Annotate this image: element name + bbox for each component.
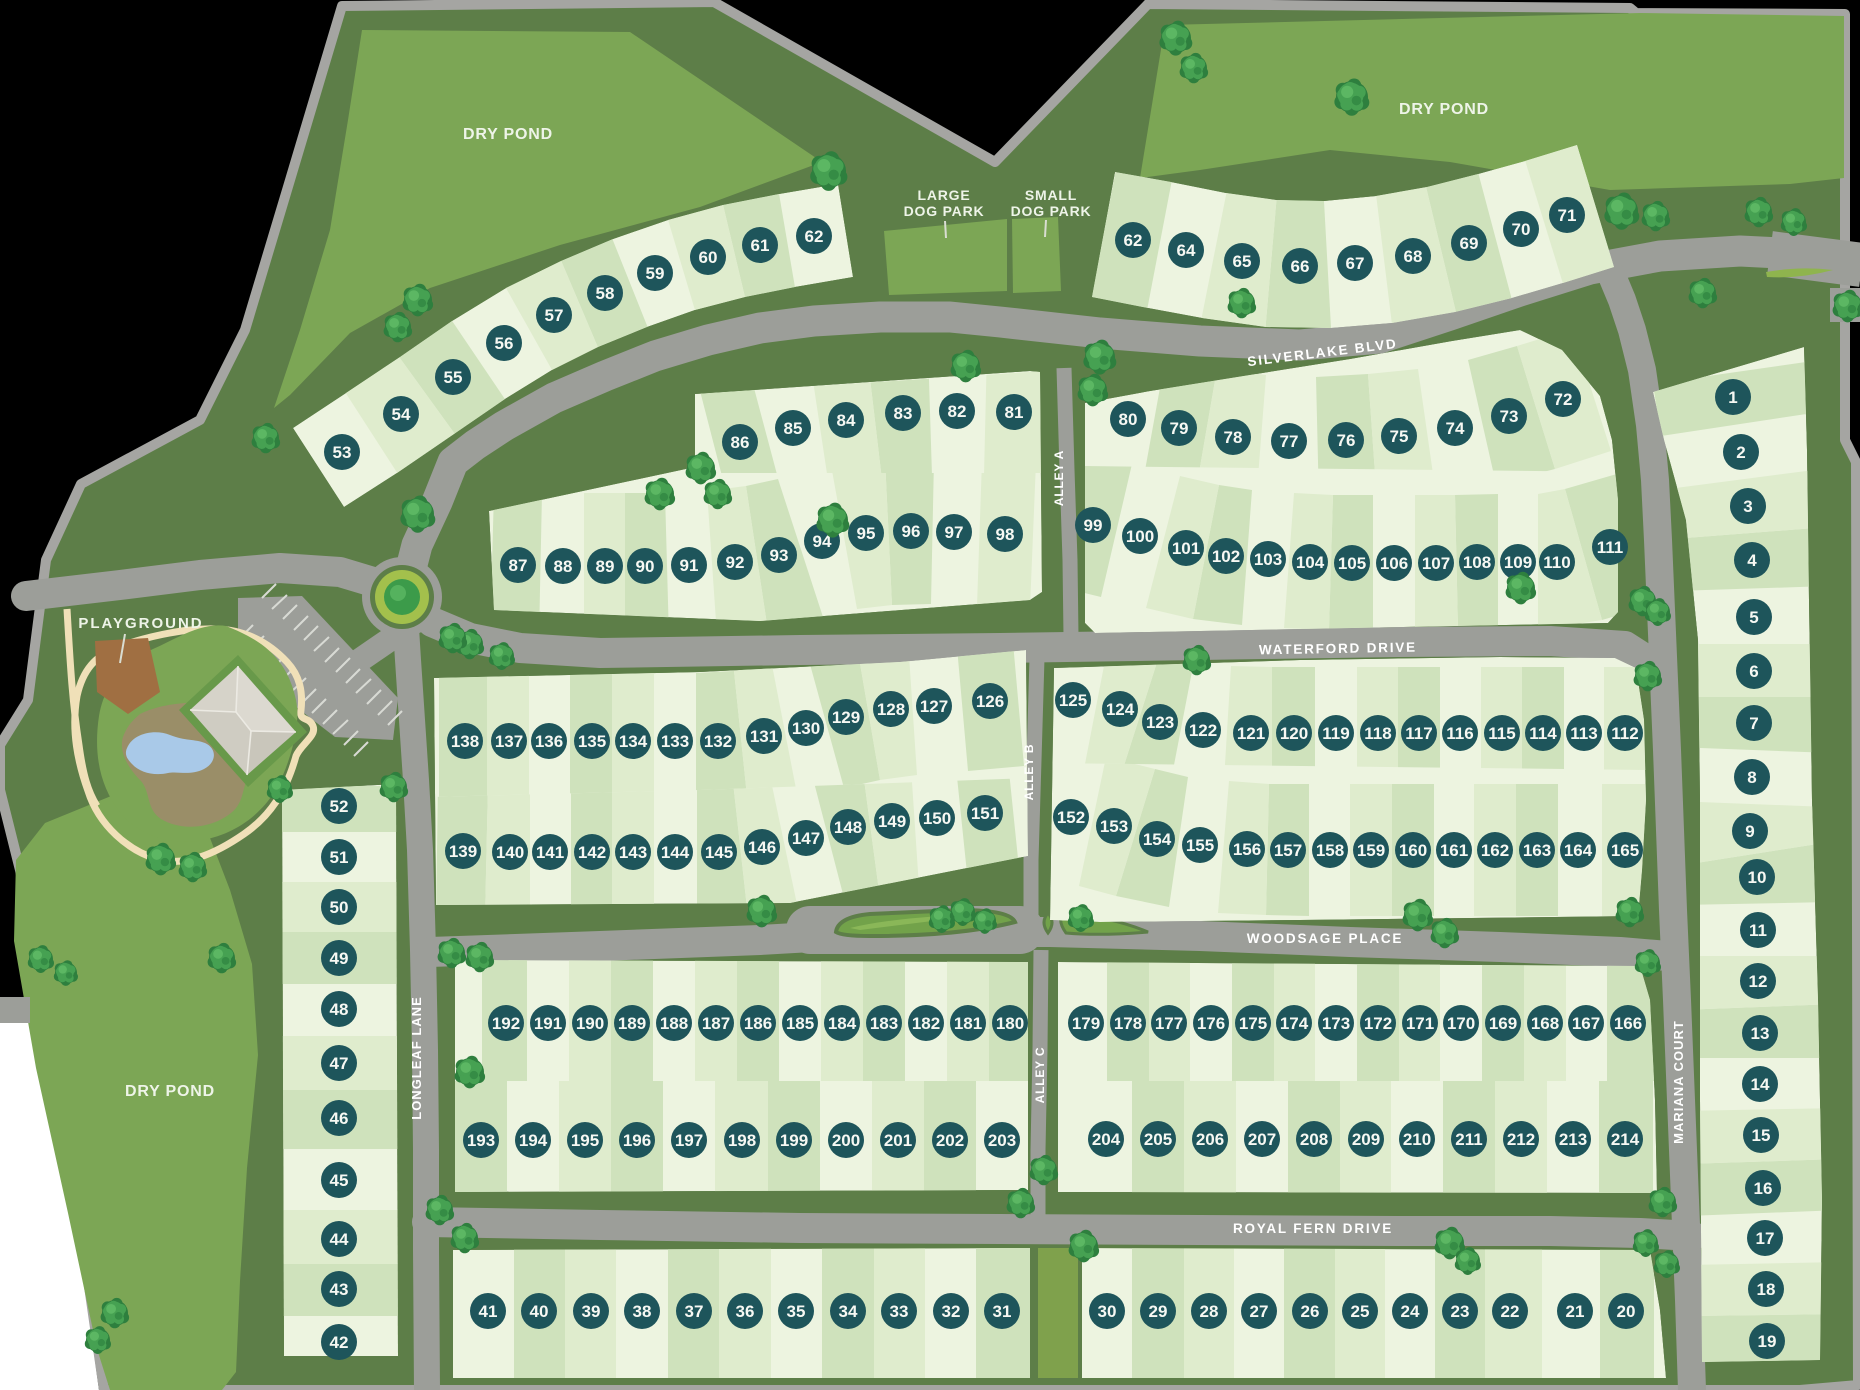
- svg-text:36: 36: [736, 1302, 755, 1321]
- svg-text:72: 72: [1554, 390, 1573, 409]
- svg-text:4: 4: [1747, 551, 1757, 570]
- svg-text:30: 30: [1098, 1302, 1117, 1321]
- svg-text:161: 161: [1440, 841, 1468, 860]
- svg-text:201: 201: [884, 1131, 912, 1150]
- svg-text:96: 96: [902, 522, 921, 541]
- svg-text:123: 123: [1146, 713, 1174, 732]
- svg-text:32: 32: [942, 1302, 961, 1321]
- svg-text:90: 90: [636, 557, 655, 576]
- svg-text:169: 169: [1489, 1014, 1517, 1033]
- svg-text:WOODSAGE PLACE: WOODSAGE PLACE: [1247, 931, 1403, 946]
- svg-text:86: 86: [731, 433, 750, 452]
- svg-text:100: 100: [1126, 527, 1154, 546]
- svg-text:165: 165: [1611, 841, 1639, 860]
- svg-text:79: 79: [1170, 419, 1189, 438]
- svg-text:85: 85: [784, 419, 803, 438]
- svg-text:PLAYGROUND: PLAYGROUND: [78, 615, 203, 632]
- svg-text:167: 167: [1572, 1014, 1600, 1033]
- svg-text:129: 129: [832, 708, 860, 727]
- svg-text:35: 35: [787, 1302, 806, 1321]
- svg-text:92: 92: [726, 553, 745, 572]
- svg-text:193: 193: [467, 1131, 495, 1150]
- svg-text:56: 56: [495, 334, 514, 353]
- svg-text:163: 163: [1523, 841, 1551, 860]
- svg-text:52: 52: [330, 797, 349, 816]
- svg-text:38: 38: [633, 1302, 652, 1321]
- svg-text:208: 208: [1300, 1130, 1328, 1149]
- svg-text:139: 139: [449, 842, 477, 861]
- svg-text:15: 15: [1752, 1126, 1771, 1145]
- svg-text:187: 187: [702, 1014, 730, 1033]
- svg-text:213: 213: [1559, 1130, 1587, 1149]
- svg-text:64: 64: [1177, 241, 1196, 260]
- svg-text:8: 8: [1747, 768, 1756, 787]
- svg-text:54: 54: [392, 405, 411, 424]
- svg-text:168: 168: [1531, 1014, 1559, 1033]
- svg-text:97: 97: [945, 523, 964, 542]
- svg-text:98: 98: [996, 525, 1015, 544]
- svg-text:16: 16: [1754, 1179, 1773, 1198]
- svg-text:19: 19: [1758, 1332, 1777, 1351]
- svg-text:42: 42: [330, 1333, 349, 1352]
- svg-text:211: 211: [1455, 1130, 1482, 1149]
- svg-text:185: 185: [786, 1014, 814, 1033]
- svg-text:188: 188: [660, 1014, 688, 1033]
- svg-text:18: 18: [1757, 1280, 1776, 1299]
- svg-text:74: 74: [1446, 419, 1465, 438]
- svg-text:46: 46: [330, 1109, 349, 1128]
- svg-text:39: 39: [582, 1302, 601, 1321]
- svg-text:LONGLEAF LANE: LONGLEAF LANE: [409, 996, 424, 1120]
- svg-text:34: 34: [839, 1302, 858, 1321]
- svg-text:6: 6: [1749, 662, 1758, 681]
- svg-text:12: 12: [1749, 972, 1768, 991]
- svg-text:DOG PARK: DOG PARK: [904, 203, 985, 219]
- svg-text:206: 206: [1196, 1130, 1224, 1149]
- svg-text:202: 202: [936, 1131, 964, 1150]
- svg-text:24: 24: [1401, 1302, 1420, 1321]
- svg-text:205: 205: [1144, 1130, 1172, 1149]
- svg-text:31: 31: [993, 1302, 1012, 1321]
- svg-text:162: 162: [1481, 841, 1509, 860]
- svg-text:53: 53: [333, 443, 352, 462]
- svg-text:164: 164: [1564, 841, 1593, 860]
- svg-text:143: 143: [619, 843, 647, 862]
- svg-text:149: 149: [878, 812, 906, 831]
- svg-text:136: 136: [535, 732, 563, 751]
- svg-text:80: 80: [1119, 410, 1138, 429]
- svg-text:WATERFORD DRIVE: WATERFORD DRIVE: [1259, 640, 1417, 658]
- svg-text:192: 192: [492, 1014, 520, 1033]
- svg-text:142: 142: [578, 843, 606, 862]
- svg-text:197: 197: [675, 1131, 703, 1150]
- svg-text:214: 214: [1611, 1130, 1640, 1149]
- svg-text:146: 146: [748, 838, 776, 857]
- svg-text:156: 156: [1233, 840, 1261, 859]
- svg-text:128: 128: [877, 700, 905, 719]
- svg-text:ALLEY C: ALLEY C: [1033, 1047, 1047, 1104]
- svg-text:203: 203: [988, 1131, 1016, 1150]
- svg-text:25: 25: [1351, 1302, 1370, 1321]
- svg-text:180: 180: [996, 1014, 1024, 1033]
- svg-text:84: 84: [837, 411, 856, 430]
- svg-text:166: 166: [1614, 1014, 1642, 1033]
- svg-text:DRY POND: DRY POND: [463, 126, 553, 143]
- svg-text:26: 26: [1301, 1302, 1320, 1321]
- svg-text:10: 10: [1748, 868, 1767, 887]
- svg-text:95: 95: [857, 524, 876, 543]
- svg-text:59: 59: [646, 264, 665, 283]
- svg-text:159: 159: [1357, 841, 1385, 860]
- svg-text:47: 47: [330, 1054, 349, 1073]
- svg-text:179: 179: [1072, 1014, 1100, 1033]
- svg-text:7: 7: [1749, 714, 1758, 733]
- svg-text:3: 3: [1743, 497, 1752, 516]
- svg-text:11: 11: [1749, 921, 1767, 940]
- svg-text:154: 154: [1143, 830, 1172, 849]
- svg-text:145: 145: [705, 843, 733, 862]
- svg-text:58: 58: [596, 284, 615, 303]
- svg-text:135: 135: [578, 732, 606, 751]
- svg-text:119: 119: [1322, 724, 1349, 743]
- svg-text:61: 61: [751, 236, 770, 255]
- svg-text:152: 152: [1057, 808, 1085, 827]
- svg-text:178: 178: [1114, 1014, 1142, 1033]
- svg-text:207: 207: [1248, 1130, 1276, 1149]
- svg-text:153: 153: [1100, 817, 1128, 836]
- svg-text:204: 204: [1092, 1130, 1121, 1149]
- svg-text:147: 147: [792, 829, 820, 848]
- svg-text:MARIANA COURT: MARIANA COURT: [1671, 1020, 1686, 1144]
- svg-text:122: 122: [1189, 721, 1217, 740]
- svg-text:ALLEY A: ALLEY A: [1052, 450, 1066, 506]
- svg-text:73: 73: [1500, 407, 1519, 426]
- svg-text:93: 93: [770, 546, 789, 565]
- svg-text:DOG PARK: DOG PARK: [1011, 203, 1092, 219]
- svg-text:5: 5: [1749, 608, 1758, 627]
- svg-text:9: 9: [1745, 822, 1754, 841]
- svg-text:113: 113: [1570, 724, 1597, 743]
- svg-text:198: 198: [728, 1131, 756, 1150]
- svg-text:104: 104: [1296, 553, 1325, 572]
- svg-text:65: 65: [1233, 252, 1252, 271]
- svg-text:ALLEY B: ALLEY B: [1022, 744, 1036, 801]
- svg-text:155: 155: [1186, 836, 1214, 855]
- svg-text:29: 29: [1149, 1302, 1168, 1321]
- svg-text:194: 194: [519, 1131, 548, 1150]
- svg-text:23: 23: [1451, 1302, 1470, 1321]
- svg-text:70: 70: [1512, 220, 1531, 239]
- svg-text:134: 134: [619, 732, 648, 751]
- svg-text:33: 33: [890, 1302, 909, 1321]
- svg-text:108: 108: [1463, 553, 1491, 572]
- svg-text:SMALL: SMALL: [1025, 187, 1077, 203]
- svg-text:17: 17: [1756, 1229, 1775, 1248]
- svg-text:158: 158: [1316, 841, 1344, 860]
- svg-text:118: 118: [1364, 724, 1391, 743]
- svg-text:209: 209: [1352, 1130, 1380, 1149]
- svg-text:103: 103: [1254, 550, 1282, 569]
- svg-text:107: 107: [1422, 554, 1450, 573]
- svg-text:120: 120: [1280, 724, 1308, 743]
- svg-text:130: 130: [792, 719, 820, 738]
- svg-text:14: 14: [1751, 1075, 1770, 1094]
- svg-text:144: 144: [661, 843, 690, 862]
- svg-text:57: 57: [545, 306, 564, 325]
- svg-text:150: 150: [923, 809, 951, 828]
- svg-text:41: 41: [479, 1302, 498, 1321]
- svg-text:133: 133: [661, 732, 689, 751]
- svg-text:1: 1: [1728, 388, 1737, 407]
- svg-text:184: 184: [828, 1014, 857, 1033]
- svg-text:69: 69: [1460, 234, 1479, 253]
- svg-text:62: 62: [1124, 231, 1143, 250]
- svg-text:48: 48: [330, 1000, 349, 1019]
- svg-text:182: 182: [912, 1014, 940, 1033]
- svg-text:115: 115: [1488, 724, 1515, 743]
- svg-text:210: 210: [1403, 1130, 1431, 1149]
- svg-text:170: 170: [1447, 1014, 1475, 1033]
- svg-text:40: 40: [530, 1302, 549, 1321]
- svg-text:102: 102: [1212, 547, 1240, 566]
- svg-text:151: 151: [971, 804, 999, 823]
- svg-text:177: 177: [1155, 1014, 1183, 1033]
- svg-text:117: 117: [1405, 724, 1432, 743]
- svg-text:132: 132: [704, 732, 732, 751]
- svg-text:191: 191: [534, 1014, 562, 1033]
- svg-text:137: 137: [495, 732, 523, 751]
- svg-text:51: 51: [330, 848, 349, 867]
- svg-text:101: 101: [1172, 539, 1200, 558]
- svg-text:88: 88: [554, 557, 573, 576]
- svg-text:77: 77: [1280, 432, 1299, 451]
- svg-text:109: 109: [1504, 553, 1532, 572]
- svg-text:76: 76: [1337, 431, 1356, 450]
- svg-text:43: 43: [330, 1280, 349, 1299]
- svg-text:189: 189: [618, 1014, 646, 1033]
- svg-text:160: 160: [1399, 841, 1427, 860]
- svg-text:89: 89: [596, 557, 615, 576]
- svg-text:91: 91: [680, 556, 699, 575]
- svg-text:181: 181: [954, 1014, 982, 1033]
- svg-text:176: 176: [1197, 1014, 1225, 1033]
- svg-text:27: 27: [1250, 1302, 1269, 1321]
- svg-text:28: 28: [1200, 1302, 1219, 1321]
- svg-text:62: 62: [805, 227, 824, 246]
- svg-text:75: 75: [1390, 427, 1409, 446]
- svg-text:111: 111: [1597, 538, 1624, 557]
- svg-text:112: 112: [1611, 724, 1638, 743]
- svg-text:157: 157: [1274, 841, 1302, 860]
- svg-text:110: 110: [1543, 553, 1570, 572]
- svg-text:121: 121: [1237, 724, 1265, 743]
- svg-text:114: 114: [1529, 724, 1557, 743]
- svg-text:126: 126: [976, 692, 1004, 711]
- svg-text:196: 196: [623, 1131, 651, 1150]
- svg-text:172: 172: [1364, 1014, 1392, 1033]
- svg-text:82: 82: [948, 402, 967, 421]
- svg-text:183: 183: [870, 1014, 898, 1033]
- svg-text:199: 199: [780, 1131, 808, 1150]
- svg-text:200: 200: [832, 1131, 860, 1150]
- svg-text:DRY POND: DRY POND: [1399, 101, 1489, 118]
- svg-text:87: 87: [509, 556, 528, 575]
- svg-text:186: 186: [744, 1014, 772, 1033]
- svg-text:127: 127: [920, 697, 948, 716]
- svg-text:50: 50: [330, 898, 349, 917]
- svg-text:83: 83: [894, 404, 913, 423]
- svg-text:13: 13: [1751, 1024, 1770, 1043]
- svg-text:37: 37: [685, 1302, 704, 1321]
- svg-text:2: 2: [1736, 443, 1745, 462]
- svg-text:125: 125: [1059, 691, 1087, 710]
- svg-text:81: 81: [1005, 403, 1024, 422]
- svg-text:140: 140: [496, 843, 524, 862]
- svg-text:99: 99: [1084, 516, 1103, 535]
- svg-text:67: 67: [1346, 254, 1365, 273]
- svg-text:175: 175: [1239, 1014, 1267, 1033]
- svg-text:173: 173: [1322, 1014, 1350, 1033]
- svg-text:44: 44: [330, 1230, 349, 1249]
- svg-text:78: 78: [1224, 428, 1243, 447]
- svg-text:60: 60: [699, 248, 718, 267]
- svg-text:131: 131: [750, 727, 778, 746]
- svg-text:174: 174: [1280, 1014, 1309, 1033]
- svg-text:LARGE: LARGE: [918, 187, 971, 203]
- svg-text:141: 141: [536, 843, 564, 862]
- svg-text:20: 20: [1617, 1302, 1636, 1321]
- svg-text:21: 21: [1566, 1302, 1585, 1321]
- svg-text:116: 116: [1446, 724, 1473, 743]
- svg-text:124: 124: [1106, 700, 1135, 719]
- svg-text:66: 66: [1291, 257, 1310, 276]
- svg-text:71: 71: [1558, 206, 1577, 225]
- svg-text:ROYAL FERN DRIVE: ROYAL FERN DRIVE: [1233, 1221, 1393, 1236]
- svg-text:55: 55: [444, 368, 463, 387]
- svg-text:190: 190: [576, 1014, 604, 1033]
- svg-text:195: 195: [571, 1131, 599, 1150]
- svg-text:148: 148: [834, 818, 862, 837]
- svg-text:105: 105: [1338, 554, 1366, 573]
- svg-text:68: 68: [1404, 247, 1423, 266]
- svg-text:171: 171: [1406, 1014, 1434, 1033]
- svg-text:49: 49: [330, 949, 349, 968]
- svg-text:DRY POND: DRY POND: [125, 1083, 215, 1100]
- svg-text:45: 45: [330, 1171, 349, 1190]
- svg-text:212: 212: [1507, 1130, 1535, 1149]
- svg-text:106: 106: [1380, 554, 1408, 573]
- svg-text:22: 22: [1501, 1302, 1520, 1321]
- svg-text:138: 138: [451, 732, 479, 751]
